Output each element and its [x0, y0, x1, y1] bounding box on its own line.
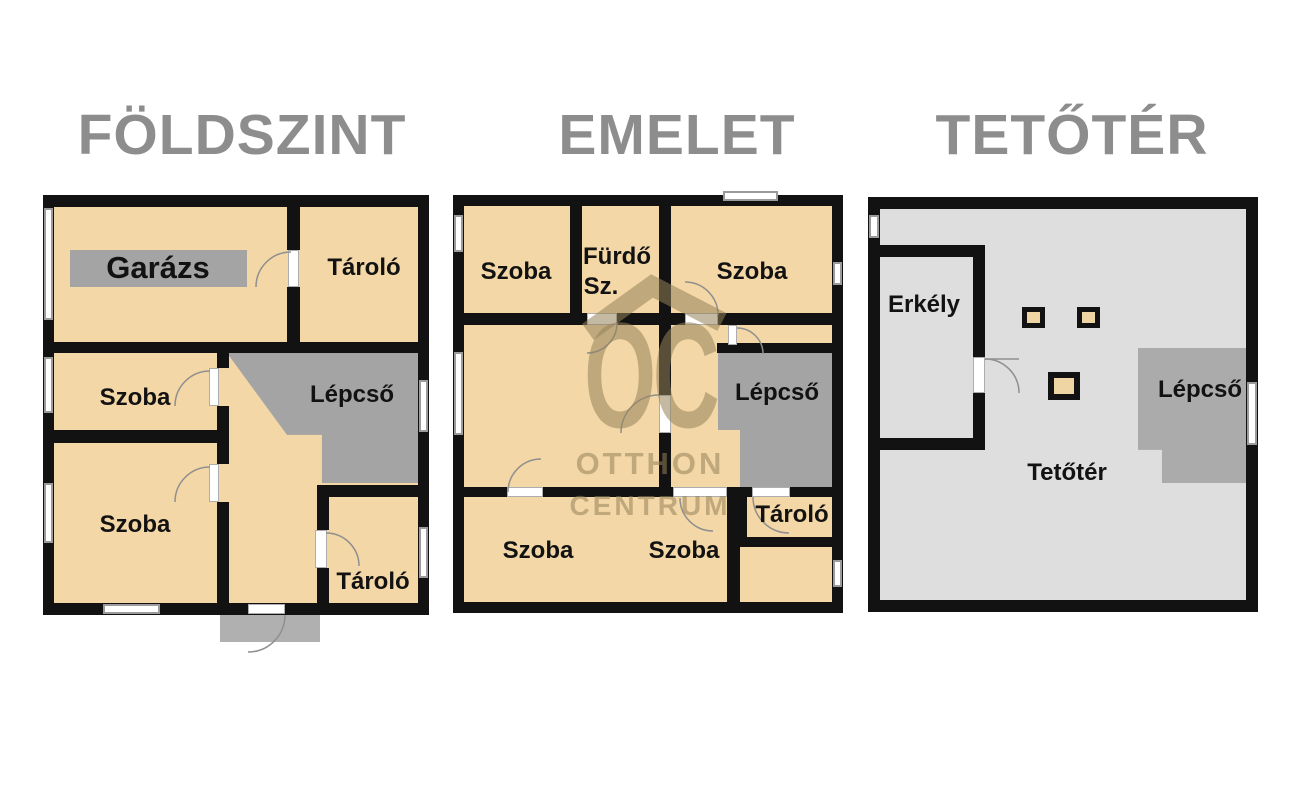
floorplan-ground-floor: Garázs Tároló Szoba Lépcső Szoba Tároló: [43, 195, 429, 615]
door: [673, 487, 727, 497]
wall: [832, 195, 843, 613]
balcony-door: [973, 357, 985, 393]
wall: [659, 433, 671, 487]
room-label-storage-top: Tároló: [327, 254, 400, 282]
wall: [43, 603, 429, 615]
wall: [727, 537, 843, 547]
skylight-square: [1022, 307, 1045, 328]
door: [209, 368, 219, 406]
window: [833, 560, 842, 587]
window: [869, 215, 879, 238]
wall: [43, 342, 429, 353]
wall: [868, 438, 985, 450]
room-label-room-bottom-mid: Szoba: [649, 537, 720, 565]
room-label-balcony: Erkély: [888, 291, 960, 319]
window: [419, 380, 428, 432]
window: [103, 604, 160, 614]
room-label-storage-bottom: Tároló: [336, 568, 409, 596]
room-label-stairs: Lépcső: [1158, 376, 1242, 404]
wall: [217, 502, 229, 603]
window: [1247, 382, 1257, 445]
wall: [659, 325, 671, 395]
window: [833, 262, 842, 285]
door: [659, 395, 671, 433]
chimney-square: [1048, 372, 1080, 400]
wall: [43, 195, 429, 207]
door: [587, 313, 617, 325]
wall: [453, 313, 843, 325]
wall: [329, 485, 418, 497]
floorplan-first-floor: Szoba Fürdő Sz. Szoba Lépcső Tároló Szob…: [453, 195, 843, 613]
window: [454, 215, 463, 252]
room-label-attic: Tetőtér: [1027, 459, 1107, 487]
window: [723, 191, 778, 201]
wall: [659, 206, 671, 313]
wall: [868, 245, 985, 257]
wall: [570, 206, 582, 313]
room-label-storage: Tároló: [755, 501, 828, 529]
wall: [287, 207, 300, 250]
title-ground-floor: FÖLDSZINT: [42, 102, 442, 168]
room-label-room-mid: Szoba: [100, 384, 171, 412]
room-label-garage: Garázs: [106, 250, 209, 286]
room-label-stairs: Lépcső: [735, 379, 819, 407]
wall: [317, 485, 329, 530]
wall: [868, 600, 1258, 612]
wall: [868, 197, 880, 612]
room-label-room-bottom: Szoba: [100, 511, 171, 539]
wall: [543, 487, 673, 497]
door: [685, 313, 718, 325]
door: [315, 530, 327, 568]
window: [419, 527, 428, 578]
room-label-stairs: Lépcső: [310, 381, 394, 409]
title-attic-floor: TETŐTÉR: [912, 102, 1232, 168]
wall: [973, 245, 985, 357]
floorplan-attic: Erkély Lépcső Tetőtér: [868, 197, 1258, 612]
wall: [868, 197, 1258, 209]
wall: [453, 602, 843, 613]
window: [44, 208, 53, 320]
wall: [790, 487, 843, 497]
wall: [317, 568, 329, 603]
entry-porch: [220, 615, 320, 642]
wall: [464, 487, 507, 497]
window: [44, 483, 53, 543]
window: [454, 352, 463, 435]
door: [728, 325, 737, 345]
door: [288, 250, 299, 287]
skylight-square: [1077, 307, 1100, 328]
wall: [43, 430, 229, 443]
wall: [217, 342, 229, 368]
room-label-bathroom-line2: Sz.: [584, 273, 619, 301]
entry-door: [248, 604, 285, 614]
title-first-floor: EMELET: [517, 102, 837, 168]
window: [44, 357, 53, 413]
door: [507, 487, 543, 497]
wall: [217, 406, 229, 464]
wall: [287, 287, 300, 342]
room-label-room-top-left: Szoba: [481, 258, 552, 286]
door: [209, 464, 219, 502]
door: [752, 487, 790, 497]
room-label-room-top-right: Szoba: [717, 258, 788, 286]
wall: [453, 195, 843, 206]
room-label-bathroom-line1: Fürdő: [583, 243, 651, 271]
room-label-room-bottom-left: Szoba: [503, 537, 574, 565]
